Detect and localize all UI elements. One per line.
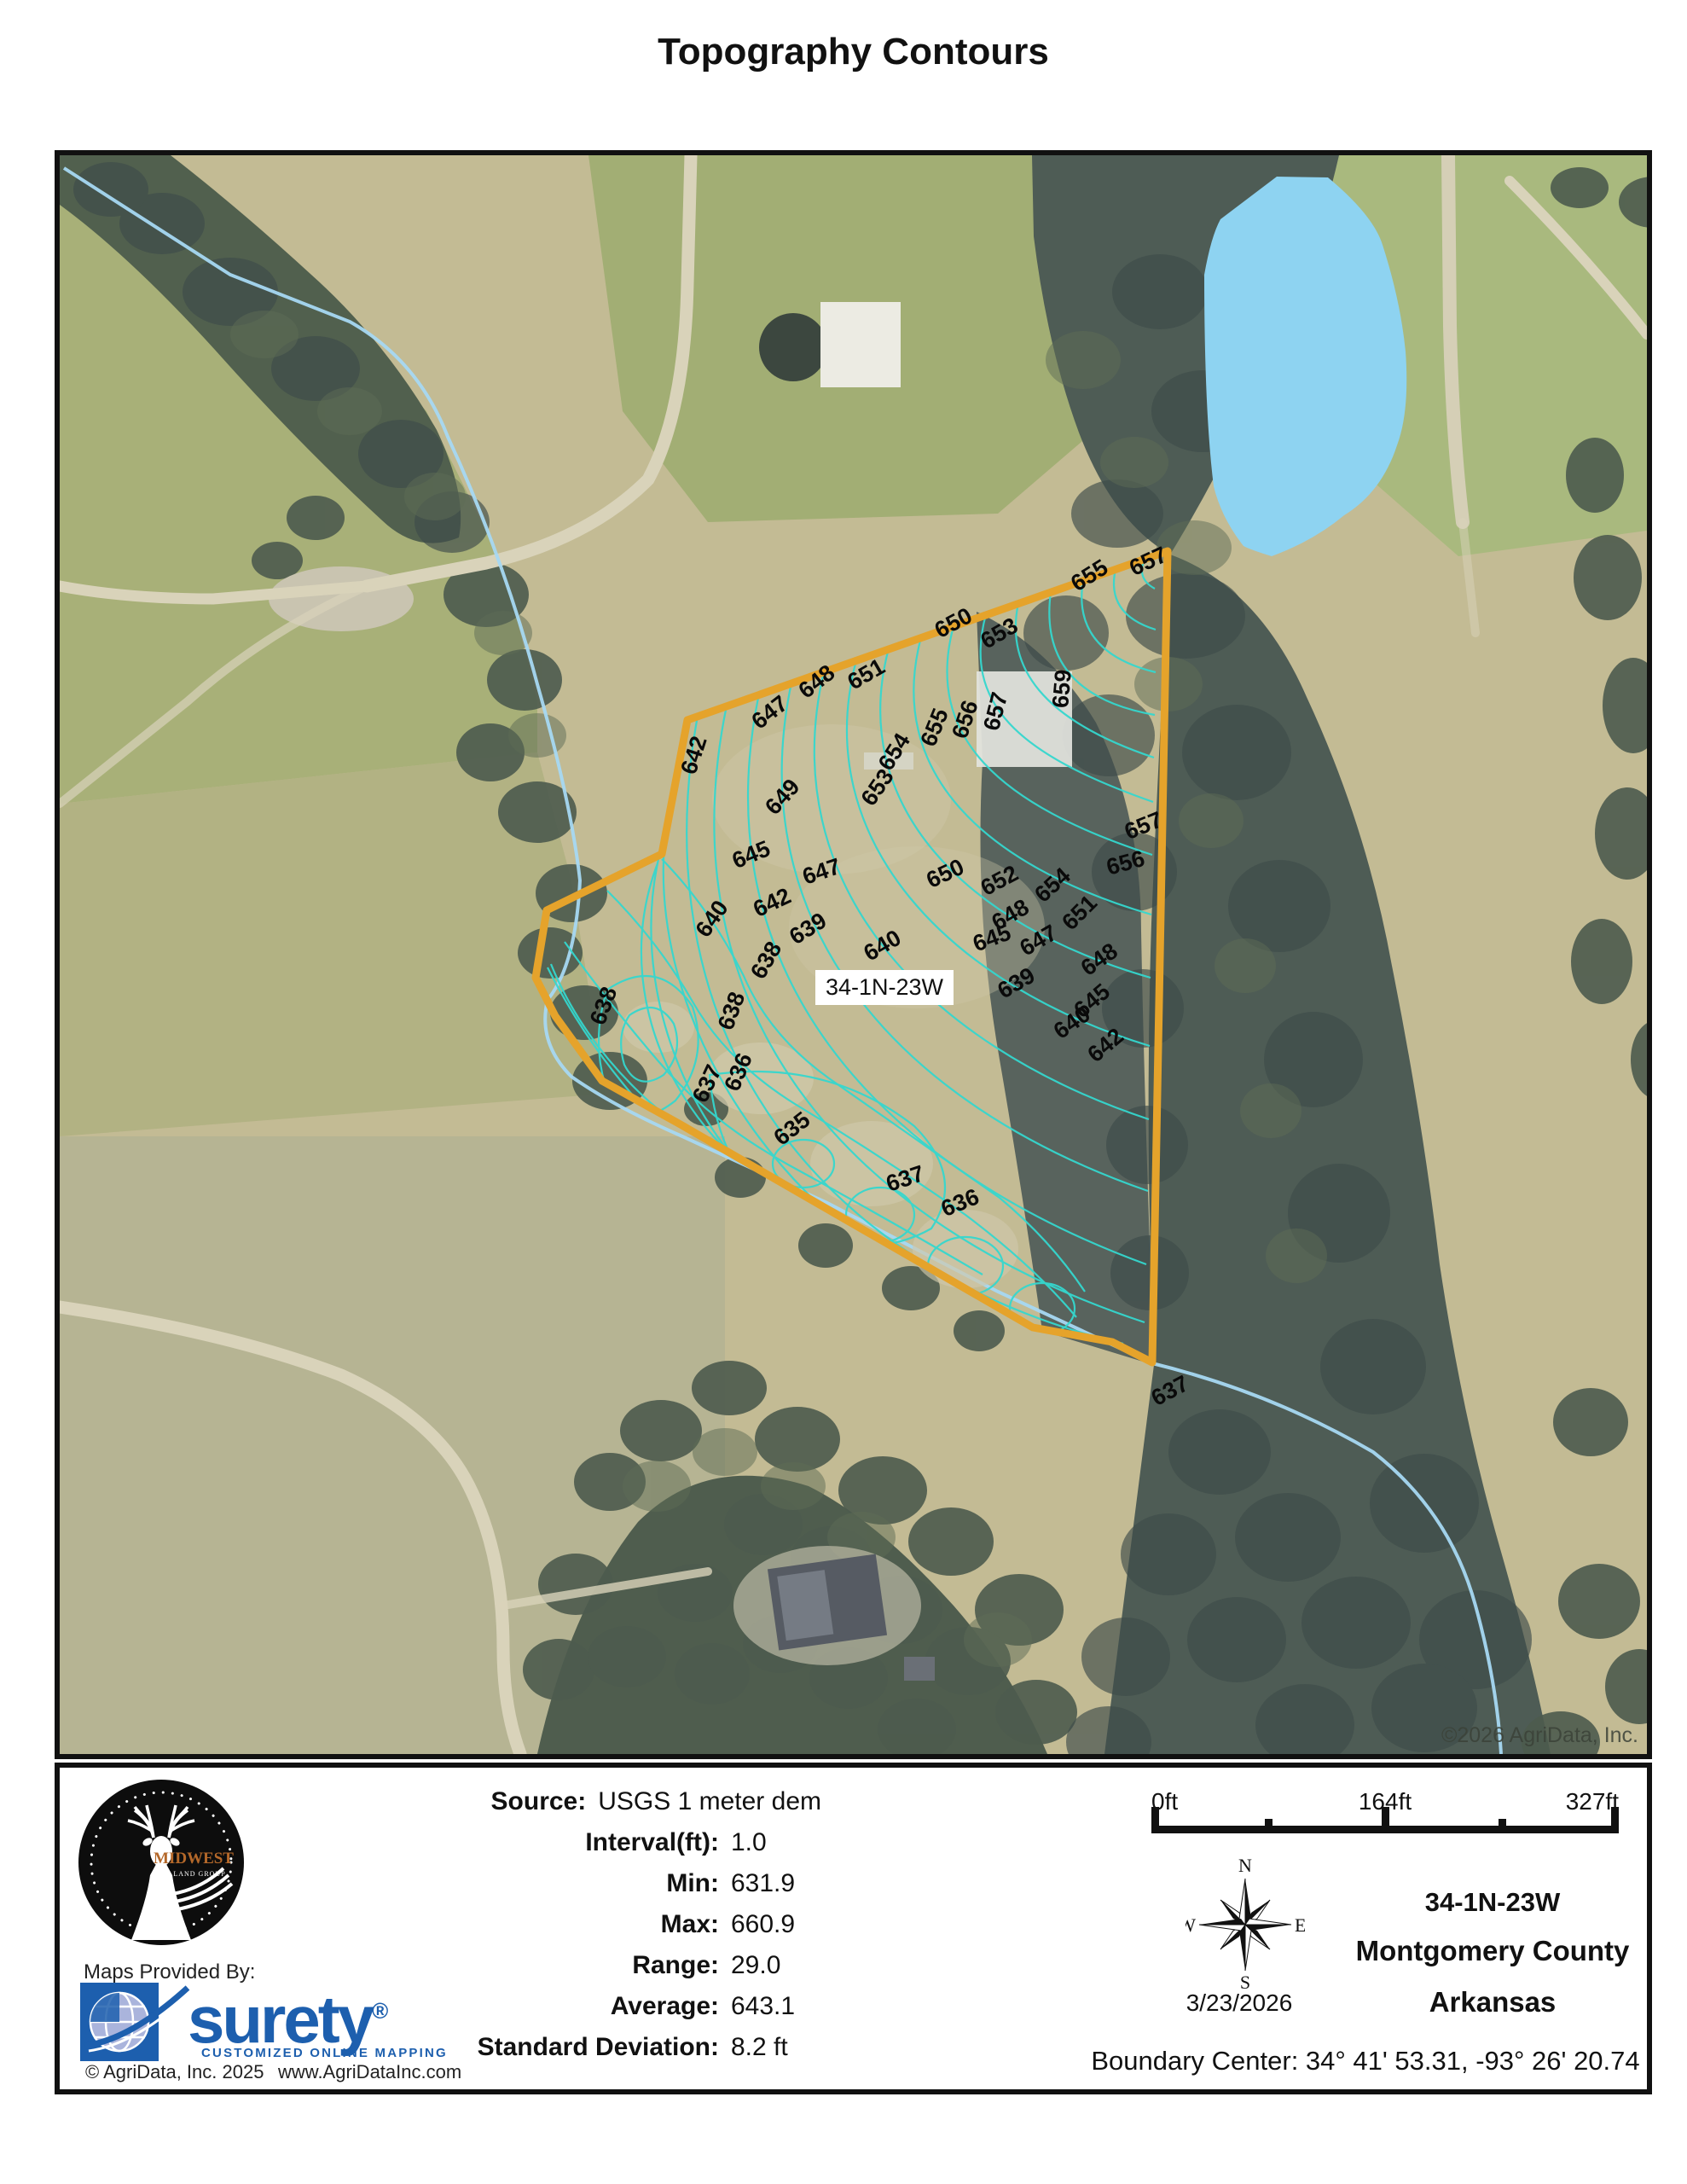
contour-elevation-label: 659: [1047, 668, 1076, 709]
scale-tick: [1499, 1819, 1506, 1833]
stat-label: Interval(ft):: [293, 1828, 719, 1857]
stat-label: Max:: [293, 1910, 719, 1939]
stat-value: USGS 1 meter dem: [598, 1787, 821, 1816]
stat-row: Average:643.1: [293, 1986, 821, 2027]
midwest-land-group-logo: MIDWEST LAND GROUP: [72, 1773, 251, 1952]
scale-tick: [1611, 1807, 1619, 1833]
compass-rose: N S W E: [1186, 1856, 1305, 1993]
stat-label: Average:: [293, 1992, 719, 2021]
boundary-center: Boundary Center: 34° 41' 53.31, -93° 26'…: [1083, 2046, 1648, 2077]
location-block: 34-1N-23W Montgomery County Arkansas: [1322, 1887, 1663, 2018]
stat-label: Standard Deviation:: [293, 2033, 719, 2062]
stat-label: Range:: [293, 1951, 719, 1980]
stat-row: Standard Deviation:8.2 ft: [293, 2027, 821, 2068]
compass-cardinal-points: [1199, 1879, 1291, 1971]
scale-tick: [1382, 1807, 1389, 1833]
stat-value: 660.9: [731, 1910, 795, 1939]
surety-globe-icon: [80, 1979, 193, 2065]
scale-tick: [1265, 1819, 1272, 1833]
parcel-label: 34-1N-23W: [815, 970, 954, 1005]
stat-row: Source:USGS 1 meter dem: [293, 1781, 821, 1822]
stat-row: Max:660.9: [293, 1904, 821, 1945]
compass-east-label: E: [1295, 1914, 1305, 1936]
elevation-stats: Source:USGS 1 meter demInterval(ft):1.0M…: [293, 1781, 821, 2068]
page-title: Topography Contours: [55, 31, 1652, 73]
scale-bar: 0ft 164ft 327ft: [1151, 1788, 1619, 1853]
compass-west-label: W: [1186, 1914, 1196, 1936]
stat-value: 29.0: [731, 1951, 780, 1980]
stat-value: 1.0: [731, 1828, 767, 1857]
stat-label: Source:: [293, 1787, 586, 1816]
location-parcel: 34-1N-23W: [1322, 1887, 1663, 1918]
stat-row: Interval(ft):1.0: [293, 1822, 821, 1863]
map-copyright: ©2026 AgriData, Inc.: [1441, 1723, 1638, 1748]
aerial-map-art: 6426476486516506536556576596546536556566…: [60, 155, 1647, 1754]
map-date: 3/23/2026: [1154, 1989, 1325, 2017]
stat-row: Min:631.9: [293, 1863, 821, 1904]
stat-value: 8.2 ft: [731, 2033, 788, 2062]
stat-value: 643.1: [731, 1992, 795, 2021]
land-group-text: LAND GROUP: [173, 1870, 225, 1878]
stat-row: Range:29.0: [293, 1945, 821, 1986]
footer-panel: MIDWEST LAND GROUP Maps Provided By: sur…: [55, 1763, 1652, 2094]
midwest-brand-text: MIDWEST: [154, 1850, 234, 1867]
agridata-copyright: © AgriData, Inc. 2025: [85, 2061, 264, 2083]
aerial-map: 6426476486516506536556576596546536556566…: [55, 150, 1652, 1759]
stat-value: 631.9: [731, 1869, 795, 1898]
compass-north-label: N: [1238, 1856, 1252, 1876]
scale-tick: [1151, 1807, 1159, 1833]
stat-label: Min:: [293, 1869, 719, 1898]
report-page: Topography Contours: [0, 0, 1687, 2184]
location-state: Arkansas: [1322, 1986, 1663, 2018]
location-county: Montgomery County: [1322, 1935, 1663, 1967]
